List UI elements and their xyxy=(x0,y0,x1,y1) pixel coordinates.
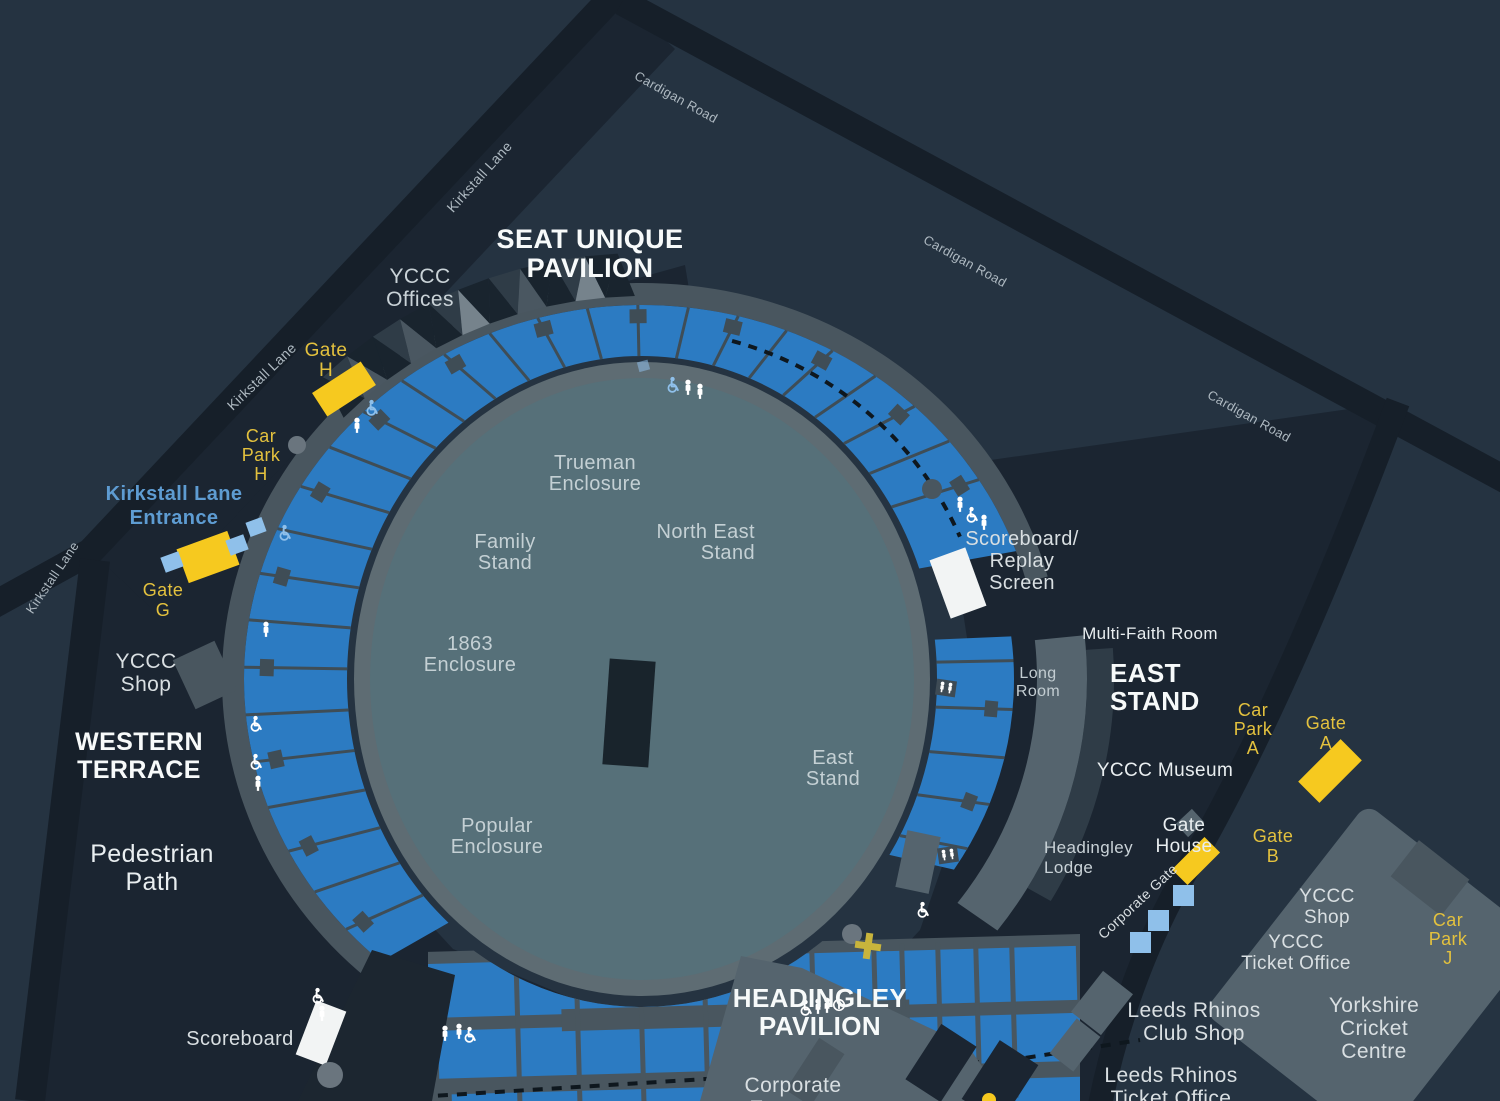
label-western-terrace: WESTERNTERRACE xyxy=(75,728,203,784)
label-scoreboard-sw: Scoreboard xyxy=(186,1028,293,1050)
label-leeds-rhinos-club-shop: Leeds RhinosClub Shop xyxy=(1127,999,1260,1045)
label-yorkshire-cricket-centre: YorkshireCricketCentre xyxy=(1329,994,1419,1063)
stadium-map-page: Headingley Stadium ground map xyxy=(0,0,1500,1101)
cricket-pitch xyxy=(602,659,655,768)
toilets-icon xyxy=(937,846,959,865)
tree-circle xyxy=(922,479,942,499)
tree-circle xyxy=(288,436,306,454)
label-multi-faith-room: Multi-Faith Room xyxy=(1082,624,1218,643)
label-leeds-rhinos-ticket-office: Leeds RhinosTicket Office xyxy=(1104,1064,1237,1101)
label-popular-enclosure: PopularEnclosure xyxy=(451,815,544,858)
label-east-stand-field: EastStand xyxy=(806,747,860,790)
label-headingley-pavilion: HEADINGLEYPAVILION xyxy=(733,983,907,1041)
toilets-icon xyxy=(935,679,957,698)
label-trueman-enclosure: TruemanEnclosure xyxy=(549,452,642,495)
label-family-stand: FamilyStand xyxy=(474,531,535,574)
tree-circle xyxy=(842,924,862,944)
label-corporate-entrance: CorporateEntrance xyxy=(745,1074,842,1101)
label-yccc-shop-west: YCCCShop xyxy=(115,650,176,696)
label-yccc-offices: YCCCOffices xyxy=(386,265,454,311)
label-gate-house: GateHouse xyxy=(1156,815,1213,857)
headingley-stadium-map: Headingley Stadium ground map xyxy=(0,0,1500,1101)
label-yccc-museum: YCCC Museum xyxy=(1097,760,1233,781)
tree-circle xyxy=(317,1062,343,1088)
label-long-room: LongRoom xyxy=(1016,665,1060,700)
label-yccc-shop-se: YCCCShop xyxy=(1299,886,1354,928)
